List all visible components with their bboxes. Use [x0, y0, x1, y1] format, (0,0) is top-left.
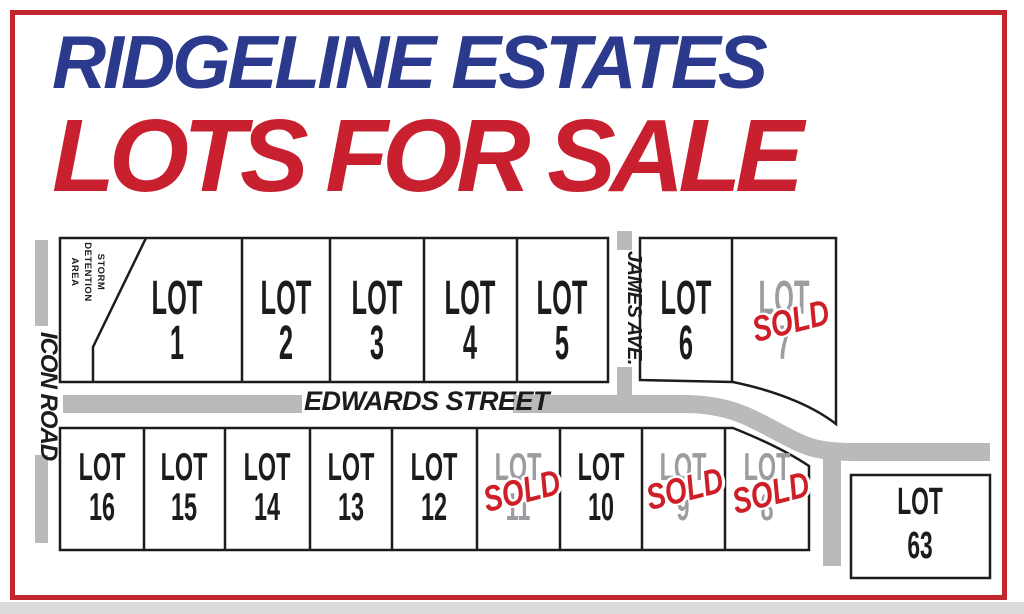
- bottom-edge-shadow: [0, 602, 1024, 614]
- lots-for-sale-sign: RIDGELINE ESTATES LOTS FOR SALE ICON ROA…: [0, 0, 1024, 614]
